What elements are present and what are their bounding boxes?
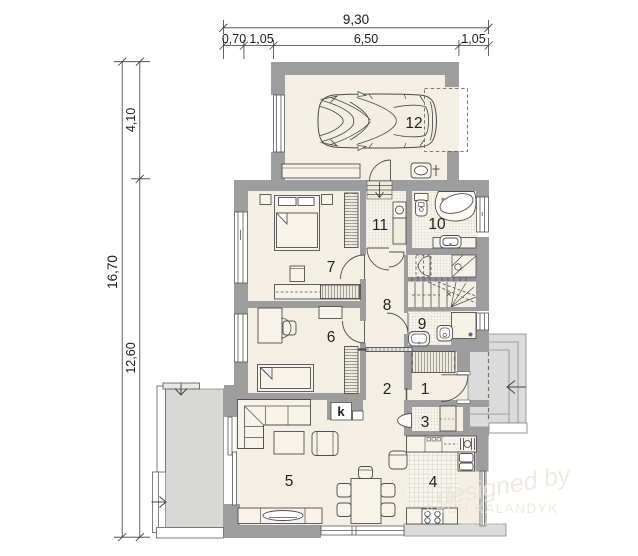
svg-text:11: 11 [372, 217, 388, 234]
svg-text:9: 9 [418, 316, 427, 333]
svg-text:7: 7 [327, 259, 336, 276]
svg-text:12: 12 [405, 115, 422, 132]
svg-text:1,05: 1,05 [461, 32, 485, 46]
svg-text:9,30: 9,30 [343, 12, 369, 27]
svg-text:k: k [337, 404, 345, 419]
svg-text:www.archon.pl: www.archon.pl [460, 522, 504, 529]
svg-text:6: 6 [327, 329, 336, 346]
svg-text:3: 3 [421, 414, 430, 431]
svg-text:4,10: 4,10 [124, 108, 138, 132]
svg-text:0,70: 0,70 [222, 32, 246, 46]
svg-text:12,60: 12,60 [124, 342, 138, 373]
svg-text:2: 2 [383, 381, 392, 398]
svg-text:10: 10 [428, 216, 446, 233]
svg-text:5: 5 [285, 473, 294, 490]
svg-text:1,05: 1,05 [249, 32, 273, 46]
svg-text:ARCH KALANDYK: ARCH KALANDYK [425, 501, 559, 516]
svg-text:16,70: 16,70 [105, 255, 120, 289]
svg-text:1: 1 [421, 381, 430, 398]
svg-text:6,50: 6,50 [354, 32, 378, 46]
svg-text:8: 8 [383, 297, 392, 314]
